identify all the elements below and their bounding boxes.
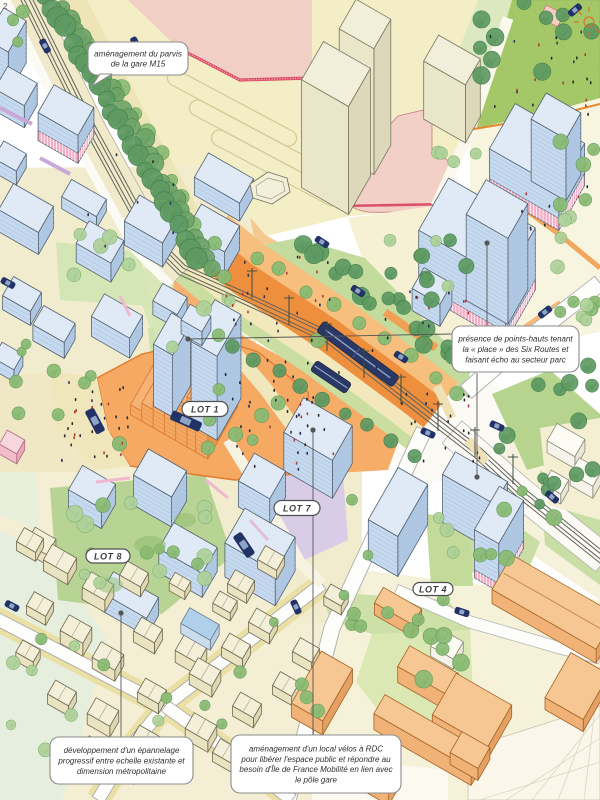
svg-text:dimension métropolitaine: dimension métropolitaine (77, 767, 166, 776)
svg-text:le pôle gare: le pôle gare (295, 776, 337, 785)
svg-text:développement d'un épannelage: développement d'un épannelage (64, 746, 180, 755)
svg-text:2: 2 (3, 2, 8, 11)
svg-text:aménagement d'un local vélos à: aménagement d'un local vélos à RDC (249, 744, 383, 753)
svg-text:LOT 8: LOT 8 (94, 551, 122, 561)
svg-text:pour libérer l'espace public e: pour libérer l'espace public et répondre… (240, 755, 391, 764)
svg-text:LOT 7: LOT 7 (283, 503, 311, 513)
svg-text:LOT 4: LOT 4 (419, 584, 447, 594)
svg-text:LOT 1: LOT 1 (191, 404, 219, 414)
svg-text:aménagement du parvis: aménagement du parvis (94, 49, 182, 58)
svg-text:besoin d'Île de France Mobilit: besoin d'Île de France Mobilité en lien … (239, 765, 392, 774)
svg-text:la « place » des Six Routes et: la « place » des Six Routes et (463, 345, 570, 354)
svg-text:faisant écho au secteur parc: faisant écho au secteur parc (465, 355, 566, 364)
svg-text:de la gare M15: de la gare M15 (111, 60, 166, 69)
svg-text:présence de points-hauts tenan: présence de points-hauts tenant (457, 335, 573, 344)
svg-text:progressif entre echelle exist: progressif entre echelle existante et (57, 757, 185, 766)
